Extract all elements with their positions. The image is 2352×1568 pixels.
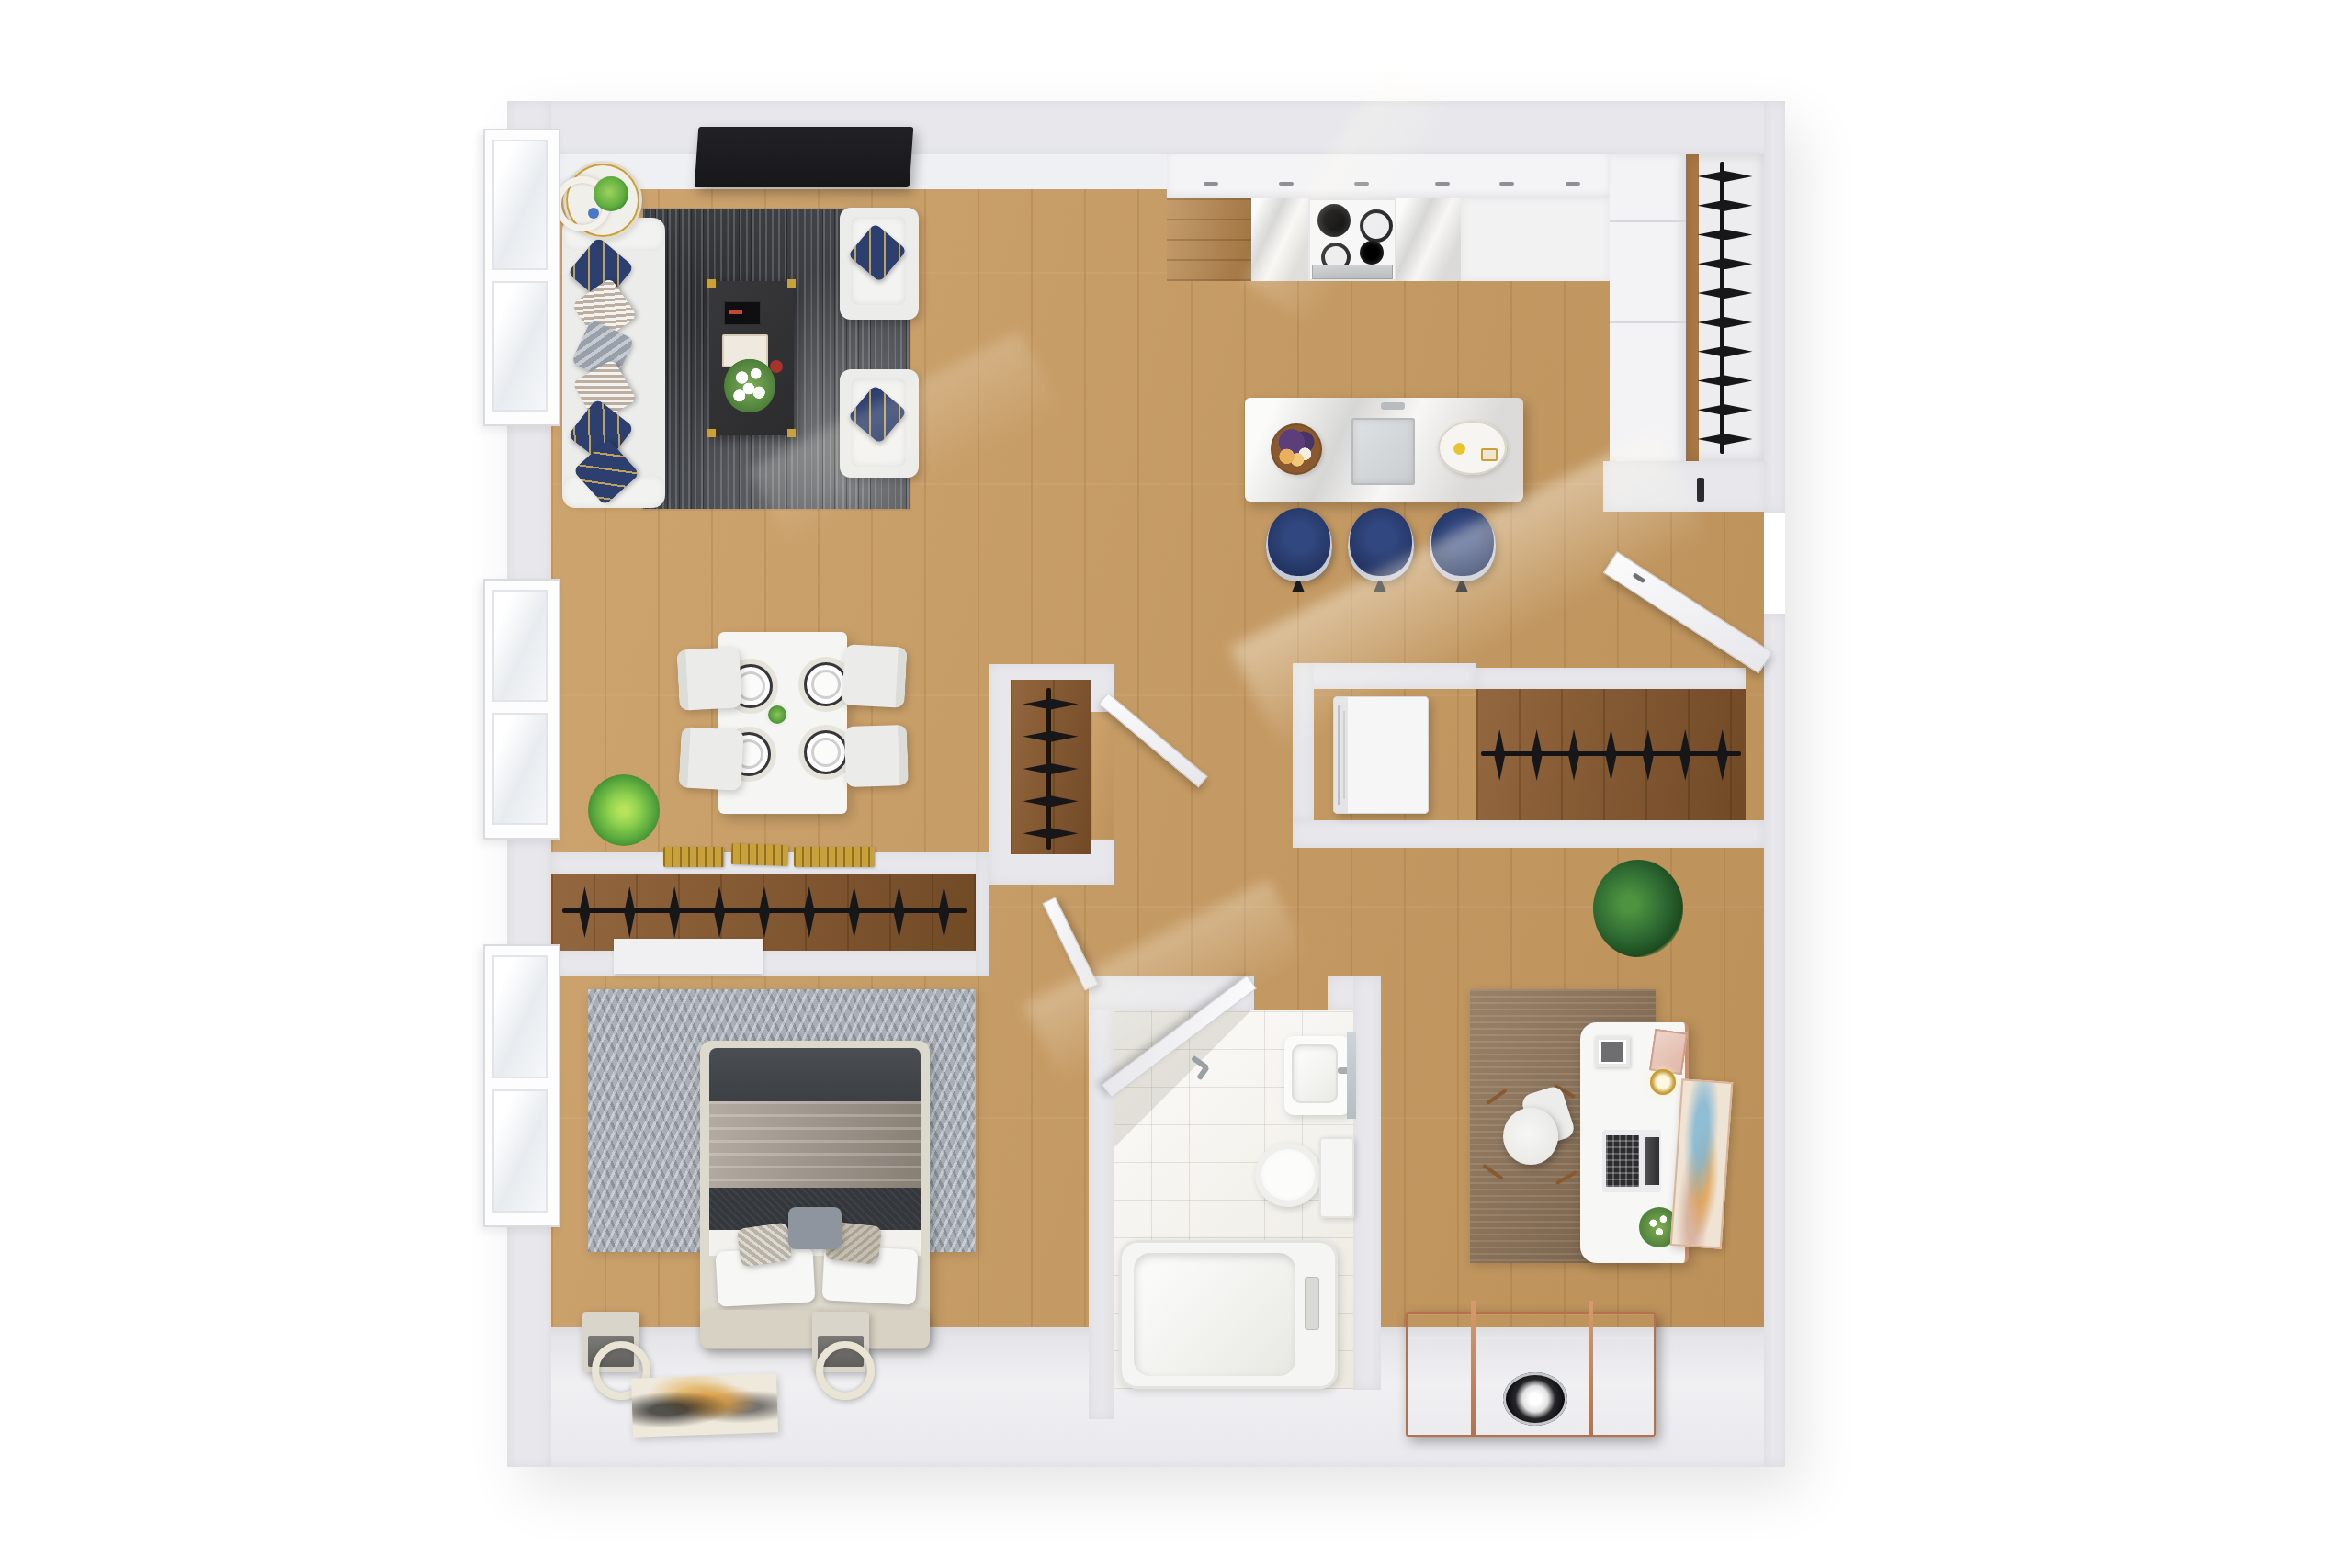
clothes-hanger — [1023, 763, 1079, 774]
entry-closet-door-handle — [1697, 478, 1704, 502]
laptop-keyboard — [1606, 1135, 1639, 1187]
bathroom-sink — [1284, 1036, 1351, 1115]
blue-cup — [588, 208, 599, 219]
cabinet-handle — [1279, 182, 1294, 186]
white-coral-decor — [1514, 1380, 1556, 1418]
window-pane — [492, 590, 548, 702]
east-wall-upper — [1764, 101, 1785, 513]
console-copper-rail — [1471, 1301, 1476, 1437]
office-plant — [1593, 860, 1683, 957]
bathtub-faucet — [1305, 1277, 1319, 1330]
console-copper-rail — [1589, 1301, 1593, 1437]
clothes-hanger — [1023, 699, 1079, 710]
gold-books — [731, 843, 789, 866]
window — [483, 579, 560, 840]
toilet-bowl — [1255, 1143, 1321, 1207]
clothes-hanger — [1679, 729, 1690, 781]
side-table-plant — [594, 176, 628, 211]
clothes-hanger — [849, 886, 860, 938]
toilet-tank — [1319, 1137, 1354, 1218]
clothes-hanger — [714, 886, 725, 938]
clothes-hanger — [1023, 731, 1079, 742]
desk-photo-frame — [1595, 1036, 1630, 1067]
window — [483, 129, 560, 426]
kitchen-wood-cabinet — [1167, 198, 1251, 281]
cabinet-handle — [1354, 182, 1369, 186]
white-flower-bouquet — [724, 358, 775, 413]
bar-stool — [1430, 508, 1496, 581]
coffee-table-gold-corner — [707, 279, 716, 288]
dining-chair — [844, 725, 909, 787]
desk-lamp — [1650, 1069, 1676, 1095]
dining-chair — [676, 647, 741, 710]
laptop-screen — [1645, 1137, 1659, 1185]
clothes-hanger — [759, 886, 770, 938]
clothes-hanger — [1698, 434, 1753, 445]
armchair — [840, 369, 919, 478]
kitchen-upper-cabinets — [1167, 154, 1610, 198]
ring-lamp — [816, 1341, 875, 1400]
cabinet-handle — [1499, 182, 1514, 186]
floor-plan — [0, 0, 2352, 1568]
clothes-hanger — [804, 886, 815, 938]
bed-duvet-charcoal — [709, 1048, 921, 1101]
clothes-hanger — [624, 886, 635, 938]
kitchen-counter-marble — [1251, 198, 1308, 281]
bar-stool — [1348, 508, 1414, 581]
clothes-hanger — [1698, 346, 1753, 357]
cabinet-handle — [1435, 182, 1450, 186]
hall-closet-hangers — [1481, 694, 1741, 816]
place-setting — [804, 730, 848, 774]
hall-closet-south-wall — [1293, 820, 1764, 848]
oven-front — [1312, 265, 1393, 279]
bed-throw-blanket — [709, 1101, 921, 1188]
gold-books — [794, 847, 875, 867]
clothes-hanger — [1698, 317, 1753, 328]
clothes-hanger — [1698, 288, 1753, 299]
laundry-nook-west-wall — [1293, 663, 1314, 820]
office-chair-seat — [1503, 1108, 1558, 1165]
coffee-table-tray — [724, 301, 761, 325]
hall-closet-north-wall — [1476, 668, 1746, 690]
clothes-hanger — [1698, 404, 1753, 415]
clothes-hanger — [894, 886, 905, 938]
wall-mounted-tv — [695, 127, 914, 187]
coffee-table-gold-corner — [787, 279, 796, 288]
fruit-bowl — [1272, 425, 1320, 473]
potted-plant — [588, 774, 660, 846]
burner — [1360, 241, 1384, 265]
burner — [1360, 209, 1393, 243]
bedroom-closet-side-wall — [976, 852, 989, 976]
gold-dish — [1481, 448, 1498, 461]
bathtub-basin — [1134, 1253, 1295, 1376]
kitchen-counter-marble — [1396, 198, 1461, 281]
coffee-table-gold-corner — [787, 429, 796, 437]
entry-closet-front-wall — [1603, 461, 1767, 512]
coat-closet-hangers — [1689, 162, 1761, 454]
clothes-hanger — [1605, 729, 1616, 781]
center-closet-hangers — [1014, 688, 1087, 850]
bathroom-west-wall — [1089, 976, 1114, 1419]
dining-chair — [678, 727, 743, 790]
washer-dryer — [1333, 696, 1429, 814]
table-centerpiece — [768, 705, 786, 724]
bar-stool — [1266, 508, 1332, 581]
window-pane — [492, 281, 548, 412]
kitchen-counter — [1461, 198, 1610, 281]
bathroom-east-wall — [1353, 976, 1381, 1390]
bathroom-mirror — [1347, 1032, 1356, 1119]
window-pane — [492, 955, 548, 1078]
clothes-hanger — [1698, 229, 1753, 240]
bedroom-runner-art — [631, 1373, 778, 1437]
clothes-hanger — [1532, 729, 1543, 781]
burner — [1317, 204, 1351, 237]
east-wall-lower — [1764, 614, 1785, 1467]
red-flower — [770, 360, 783, 373]
cabinet-handle — [1566, 182, 1580, 186]
clothes-hanger — [1643, 729, 1654, 781]
center-closet-opening — [1091, 712, 1114, 840]
clothes-hanger — [1698, 375, 1753, 386]
bedroom-closet-hangers — [562, 878, 967, 946]
clothes-hanger — [1494, 729, 1505, 781]
clothes-hanger — [579, 886, 590, 938]
gold-books — [663, 847, 724, 867]
clothes-hanger — [669, 886, 680, 938]
clothes-hanger — [1717, 729, 1728, 781]
window-pane — [492, 713, 548, 825]
window — [483, 944, 560, 1227]
cabinet-handle — [1204, 182, 1218, 186]
island-sink — [1351, 418, 1415, 485]
clothes-hanger — [1698, 258, 1753, 269]
armchair — [840, 208, 919, 320]
tall-cabinet-fridge-column — [1610, 154, 1686, 461]
window-pane — [492, 1089, 548, 1213]
island-faucet — [1381, 402, 1405, 410]
clothes-hanger — [1568, 729, 1579, 781]
bed-center-pillow — [788, 1207, 842, 1249]
bed-accent-pillow — [736, 1222, 792, 1267]
clothes-hanger — [1698, 200, 1753, 211]
desk-tray — [1649, 1029, 1688, 1076]
window-pane — [492, 140, 548, 270]
closet-sliding-panel — [614, 939, 763, 974]
place-setting — [804, 662, 848, 706]
dining-chair — [842, 644, 907, 707]
laundry-nook-north-wall — [1293, 663, 1476, 689]
clothes-hanger — [1698, 171, 1753, 182]
bar-stools-row — [1266, 508, 1496, 589]
clothes-hanger — [938, 886, 949, 938]
coffee-table-gold-corner — [707, 429, 716, 437]
clothes-hanger — [1023, 828, 1079, 839]
lemon — [1453, 443, 1465, 455]
clothes-hanger — [1023, 795, 1079, 807]
